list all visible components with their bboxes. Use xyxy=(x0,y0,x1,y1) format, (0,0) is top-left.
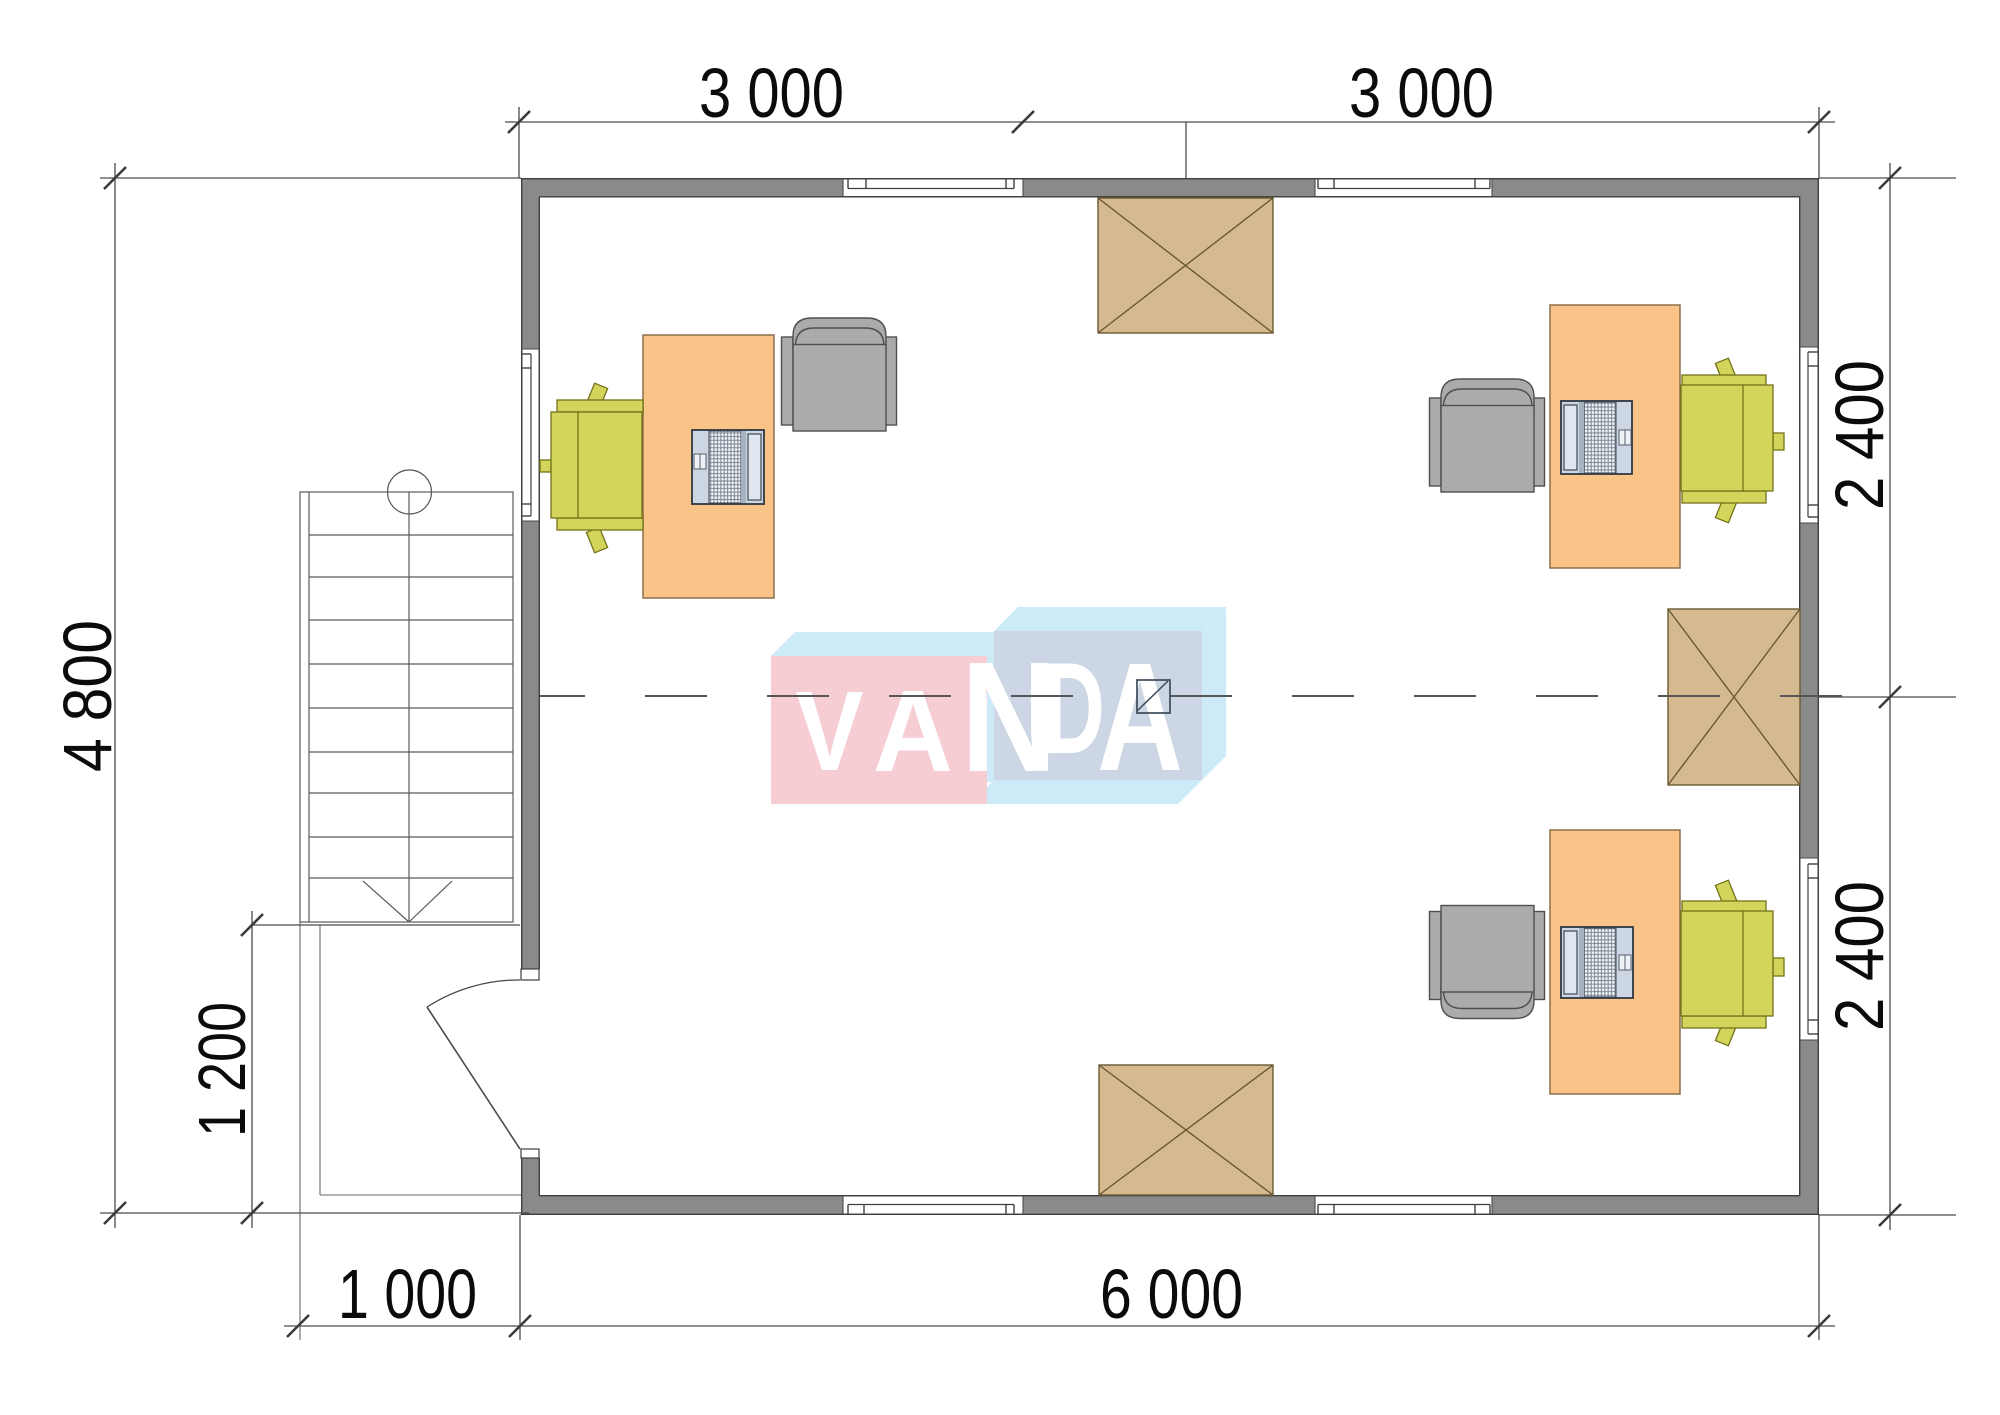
svg-text:4 800: 4 800 xyxy=(49,620,126,772)
svg-text:3 000: 3 000 xyxy=(699,54,844,132)
svg-text:A: A xyxy=(1097,631,1183,803)
svg-text:6 000: 6 000 xyxy=(1100,1255,1243,1333)
svg-text:3 000: 3 000 xyxy=(1349,54,1494,132)
svg-text:2 400: 2 400 xyxy=(1821,881,1898,1031)
svg-text:V: V xyxy=(796,668,864,794)
svg-text:2 400: 2 400 xyxy=(1821,360,1898,510)
svg-text:1 200: 1 200 xyxy=(185,1002,260,1137)
svg-text:D: D xyxy=(1042,635,1105,781)
svg-text:1 000: 1 000 xyxy=(338,1255,477,1333)
svg-text:A: A xyxy=(873,666,953,796)
